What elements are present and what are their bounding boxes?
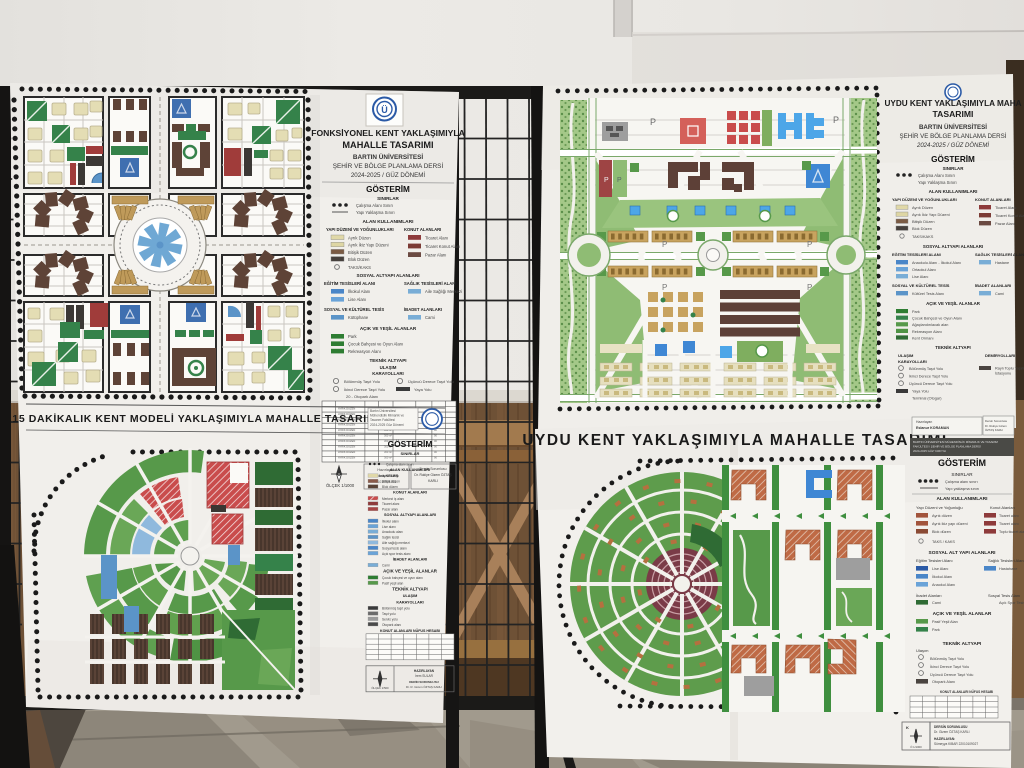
svg-text:Ayrık ikiz yapı düzeni: Ayrık ikiz yapı düzeni [932,522,968,526]
svg-text:P: P [833,115,839,125]
svg-text:SOSYAL ALT YAPI ALANLARI: SOSYAL ALT YAPI ALANLARI [929,550,997,556]
svg-text:Kent Ormanı: Kent Ormanı [912,336,934,340]
svg-text:Sosyal tesis alanı: Sosyal tesis alanı [382,546,407,550]
svg-text:300 m²: 300 m² [384,450,392,454]
svg-text:Çocuk Bahçesi ve Oyun Alanı: Çocuk Bahçesi ve Oyun Alanı [348,341,403,346]
svg-text:Ayrık Düzen: Ayrık Düzen [912,205,933,210]
svg-text:Lise alanı: Lise alanı [382,525,396,529]
svg-text:DEMİRYOLLARI: DEMİRYOLLARI [985,353,1015,358]
svg-text:TEKNİK ALTYAPI: TEKNİK ALTYAPI [369,357,406,363]
svg-text:İBADET ALANLARI: İBADET ALANLARI [975,283,1011,288]
svg-text:Ulaşım: Ulaşım [916,648,929,653]
svg-text:Sümeyya KIBAR 22010109027: Sümeyya KIBAR 22010109027 [934,742,978,746]
svg-text:Ticaret Alanı: Ticaret Alanı [425,236,448,241]
svg-text:TEKNİK ALTYAPI: TEKNİK ALTYAPI [392,586,427,591]
svg-text:Terminal (Otogar): Terminal (Otogar) [912,397,942,401]
svg-text:Tasarım Fakültesi: Tasarım Fakültesi [370,418,395,422]
svg-text:ŞEHİR VE BÖLGE PLANLAMA DERSİ: ŞEHİR VE BÖLGE PLANLAMA DERSİ [333,161,444,170]
svg-text:AYRIK DÜZEN: AYRIK DÜZEN [338,445,355,449]
svg-text:İlkokul Alanı: İlkokul Alanı [348,289,370,294]
svg-text:Ağaçlandırılacak alan: Ağaçlandırılacak alan [912,323,948,327]
svg-text:UYDU KENT YAKLAŞIMIYLA MAHA: UYDU KENT YAKLAŞIMIYLA MAHA [884,99,1021,108]
svg-text:DERİN SORUMLUSU: DERİN SORUMLUSU [409,679,439,684]
svg-text:KARLI: KARLI [428,479,438,483]
svg-text:GÖSTERİM: GÖSTERİM [931,154,975,164]
svg-text:İkinci Derece Taşıt Yolu: İkinci Derece Taşıt Yolu [909,374,948,379]
svg-text:Bartın Üniversitesi: Bartın Üniversitesi [370,409,396,413]
svg-text:Sağlık Tesisleri Alanı: Sağlık Tesisleri Alanı [988,558,1024,563]
svg-text:Toplu ticaret alanı: Toplu ticaret alanı [999,530,1024,534]
svg-text:Bitişik Düzen: Bitişik Düzen [912,219,935,224]
svg-text:Anaokulu alanı: Anaokulu alanı [382,530,403,534]
svg-text:Pazar Alanı: Pazar Alanı [995,221,1015,226]
svg-text:P: P [650,117,656,127]
svg-text:Çocuk Bahçesi ve Oyun Alanı: Çocuk Bahçesi ve Oyun Alanı [912,317,962,321]
svg-text:AYRIK DÜZEN: AYRIK DÜZEN [338,439,355,443]
svg-text:P: P [662,240,667,249]
svg-text:AÇIK VE YEŞİL ALANLAR: AÇIK VE YEŞİL ALANLAR [360,325,417,331]
svg-text:20 - Otopark Alanı: 20 - Otopark Alanı [346,394,378,399]
svg-text:300 m²: 300 m² [384,434,392,438]
svg-text:MAHALLE TASARIMI: MAHALLE TASARIMI [342,140,433,150]
svg-text:Bitişik düzen: Bitişik düzen [382,480,400,484]
svg-text:Dersin Sorumlusu: Dersin Sorumlusu [985,419,1008,423]
svg-text:Açık spor tesis alanı: Açık spor tesis alanı [382,552,411,556]
svg-text:AÇIK VE YEŞİL ALANLAR: AÇIK VE YEŞİL ALANLAR [933,610,992,617]
svg-text:Yaya Yolu: Yaya Yolu [414,387,432,392]
svg-text:BARTIN ÜNİVERSİTESİ MÜHENDİSLİ: BARTIN ÜNİVERSİTESİ MÜHENDİSLİK MİMARLIK… [913,439,998,444]
svg-text:2024-2025 Güz Dönemi: 2024-2025 Güz Dönemi [370,423,404,427]
svg-text:SOSYAL ALTYAPI ALANLARI: SOSYAL ALTYAPI ALANLARI [923,244,983,249]
svg-text:KARAYOLLARI: KARAYOLLARI [898,359,927,364]
svg-text:Cami: Cami [932,601,941,605]
svg-text:Otopark alanı: Otopark alanı [382,623,401,627]
svg-text:Raylı Toplu Taşıma: Raylı Toplu Taşıma [995,367,1024,371]
svg-text:FAKÜLTESİ / ŞEHİR VE BÖLGE PLA: FAKÜLTESİ / ŞEHİR VE BÖLGE PLANLAMA DERS… [913,444,981,449]
svg-text:Bölünmüş Taşıt Yolu: Bölünmüş Taşıt Yolu [909,367,943,371]
svg-text:Anaokulu Alanı - İlkokul Alanı: Anaokulu Alanı - İlkokul Alanı [912,260,961,265]
svg-text:Eslanur KORAMAN: Eslanur KORAMAN [916,426,949,430]
svg-text:YAPI DÜZENİ VE YOǦUNLUKLARI: YAPI DÜZENİ VE YOǦUNLUKLARI [326,227,394,232]
svg-text:Ayrık düzen: Ayrık düzen [382,474,399,478]
svg-text:300 m²: 300 m² [384,455,392,459]
svg-text:Yaya Yolu: Yaya Yolu [912,390,929,394]
svg-text:Sağlık tesisi: Sağlık tesisi [382,536,399,540]
svg-text:Ü: Ü [381,105,388,115]
svg-text:Hazırlayan: Hazırlayan [916,420,932,424]
svg-text:Dr. R. Gizem ÖZTAŞ KARLI: Dr. R. Gizem ÖZTAŞ KARLI [406,685,442,689]
svg-text:KONUT ALANLARI NÜFUS HESABI: KONUT ALANLARI NÜFUS HESABI [940,689,993,694]
svg-text:AYRIK DÜZEN: AYRIK DÜZEN [338,455,355,459]
svg-text:TEKNİK ALTYAPI: TEKNİK ALTYAPI [935,345,970,350]
svg-text:HAZIRLAYAN: HAZIRLAYAN [414,669,435,673]
svg-text:Merkezi iş alanı: Merkezi iş alanı [382,497,404,501]
svg-text:15 DAKİKALIK KENT MODELİ YAKLA: 15 DAKİKALIK KENT MODELİ YAKLAŞIMIYLA MA… [12,412,379,425]
svg-text:Mühendislik Mimarlık ve: Mühendislik Mimarlık ve [370,414,404,418]
svg-text:SINIRLAR: SINIRLAR [401,451,420,456]
svg-text:Ticaret Konut Alanı: Ticaret Konut Alanı [995,213,1024,218]
svg-text:Eğitim Tesisleri Alanı: Eğitim Tesisleri Alanı [916,558,953,563]
svg-text:Taşıt yolu: Taşıt yolu [382,612,396,616]
svg-text:Ticaret Alanı: Ticaret Alanı [995,205,1016,210]
svg-text:P: P [807,283,812,292]
svg-text:Pazar alanı: Pazar alanı [382,508,398,512]
svg-text:Pazar Alanı: Pazar Alanı [425,253,446,258]
svg-text:Aile sağlığı merkezi: Aile sağlığı merkezi [382,541,410,545]
svg-text:Blok düzen: Blok düzen [382,485,398,489]
svg-text:Cami: Cami [995,292,1004,296]
svg-text:ALAN KULLANIMLARI: ALAN KULLANIMLARI [929,189,978,194]
svg-text:Bölünmüş taşıt yolu: Bölünmüş taşıt yolu [382,607,410,611]
svg-text:P: P [604,177,609,184]
svg-text:SINIRLAR: SINIRLAR [951,472,973,477]
svg-text:2024-2025 / GÜZ DÖNEMİ: 2024-2025 / GÜZ DÖNEMİ [916,142,989,149]
svg-text:Pasif yeşil alan: Pasif yeşil alan [382,581,403,585]
svg-text:Dr. Rukiye Gizem ÖZTAŞ: Dr. Rukiye Gizem ÖZTAŞ [414,473,452,477]
svg-text:Lise Alanı: Lise Alanı [912,275,928,279]
svg-text:TAKS/KAKS: TAKS/KAKS [912,234,934,239]
svg-text:SOSYAL ALTYAPI ALANLARI: SOSYAL ALTYAPI ALANLARI [384,513,436,517]
svg-text:Yapı Yaklaşma Sınırı: Yapı Yaklaşma Sınırı [356,210,395,215]
svg-text:Otopark Alanı: Otopark Alanı [932,680,955,684]
svg-text:ULAŞIM: ULAŞIM [403,594,418,598]
svg-text:Aile Sağlığı Merkezi: Aile Sağlığı Merkezi [425,289,462,294]
svg-text:TAKS/KAKS: TAKS/KAKS [348,265,371,270]
svg-text:Açık Spor Tesisi: Açık Spor Tesisi [999,601,1024,605]
svg-text:Kültürel Tesis Alanı: Kültürel Tesis Alanı [912,292,944,296]
svg-text:EǦİTİM TESİSLERİ ALANI: EǦİTİM TESİSLERİ ALANI [324,281,375,286]
svg-text:Ö 1/1000: Ö 1/1000 [910,745,922,749]
svg-text:İBADET ALANLARI: İBADET ALANLARI [393,557,427,561]
svg-text:SAǦLIK TESİSLERİ ALANI: SAǦLIK TESİSLERİ ALANI [404,281,456,286]
svg-text:İstasyonu: İstasyonu [995,371,1011,376]
svg-text:Ayrık düzen: Ayrık düzen [932,514,952,518]
svg-text:Rekreasyon Alanı: Rekreasyon Alanı [912,330,942,334]
svg-text:KONUT ALANLARI NÜFUS HESABI: KONUT ALANLARI NÜFUS HESABI [380,628,440,633]
svg-text:Bitişik Düzen: Bitişik Düzen [348,250,373,255]
svg-text:Çalışma Alanı Sınırı: Çalışma Alanı Sınırı [356,203,393,208]
svg-text:AÇIK VE YEŞİL ALANLAR: AÇIK VE YEŞİL ALANLAR [926,301,981,306]
svg-text:BARTIN ÜNİVERSİTESİ: BARTIN ÜNİVERSİTESİ [353,152,424,161]
svg-text:Konut Alanları: Konut Alanları [990,505,1015,510]
svg-text:Park: Park [348,334,358,339]
svg-text:Ticaret Konut Alanı: Ticaret Konut Alanı [425,244,460,249]
svg-text:Anaokul Alanı: Anaokul Alanı [932,583,955,587]
svg-text:Ticaret alanı: Ticaret alanı [999,522,1019,526]
svg-text:ULAŞIM: ULAŞIM [898,353,914,358]
svg-text:P: P [662,283,667,292]
svg-text:SOSYAL ALTYAPI ALANLARI: SOSYAL ALTYAPI ALANLARI [357,273,420,278]
svg-text:P: P [617,177,622,184]
svg-text:SINIRLAR: SINIRLAR [943,166,965,171]
svg-text:KARAYOLLARI: KARAYOLLARI [372,371,404,376]
svg-text:ÖLÇEK 1/500: ÖLÇEK 1/500 [371,686,389,690]
svg-text:AÇIK VE YEŞİL ALANLAR: AÇIK VE YEŞİL ALANLAR [383,569,438,574]
svg-text:ALAN KULLANIMLARI: ALAN KULLANIMLARI [363,219,415,225]
svg-text:EǦİTİM TESİSLERİ ALANI: EǦİTİM TESİSLERİ ALANI [892,252,941,257]
svg-text:Hastahane: Hastahane [999,567,1017,571]
svg-text:2024-2025 GÜZ YARIYILI: 2024-2025 GÜZ YARIYILI [913,449,946,453]
svg-text:2024-2025 / GÜZ DÖNEMİ: 2024-2025 / GÜZ DÖNEMİ [351,172,426,179]
svg-text:Blok Düzen: Blok Düzen [348,257,370,262]
svg-text:Üçüncü Derece Taşıt Yolu: Üçüncü Derece Taşıt Yolu [930,673,973,677]
svg-text:İlkokul Alanı: İlkokul Alanı [932,574,952,579]
svg-text:AYRIK DÜZEN: AYRIK DÜZEN [338,428,355,432]
svg-text:İrem SULAR: İrem SULAR [415,673,434,678]
svg-text:FONKSİYONEL KENT YAKLAŞIMIYLA: FONKSİYONEL KENT YAKLAŞIMIYLA [311,128,465,138]
svg-text:Sosyal Tesis Alanı: Sosyal Tesis Alanı [988,593,1020,598]
svg-text:İkinci Derece Taşıt Yolu: İkinci Derece Taşıt Yolu [344,387,385,392]
svg-text:Cami: Cami [425,315,435,320]
svg-text:SOSYAL VE KÜLTÜREL TESİS: SOSYAL VE KÜLTÜREL TESİS [892,283,950,288]
svg-text:Cami: Cami [382,564,390,568]
svg-text:Lise Alanı: Lise Alanı [348,297,366,302]
svg-text:Hastane: Hastane [995,261,1009,265]
svg-text:Pasif Yeşil Alan: Pasif Yeşil Alan [932,620,958,624]
svg-text:TEKNİK ALTYAPI: TEKNİK ALTYAPI [943,640,982,647]
svg-text:ALAN KULLANIMLARI: ALAN KULLANIMLARI [390,468,430,472]
svg-text:Bölünmüş Taşıt Yolu: Bölünmüş Taşıt Yolu [930,657,964,661]
svg-text:TASARIMI: TASARIMI [933,109,974,119]
svg-text:ÖZTAŞ KARLI: ÖZTAŞ KARLI [985,428,1003,432]
svg-text:GÖSTERİM: GÖSTERİM [388,439,433,449]
svg-text:Üçüncü Derece Taşıt Yolu: Üçüncü Derece Taşıt Yolu [909,382,952,386]
svg-text:TAKS / KAKS: TAKS / KAKS [932,540,955,544]
svg-text:Çalışma alanı sınırı: Çalışma alanı sınırı [945,480,978,484]
svg-text:KONUT ALANLARI: KONUT ALANLARI [404,227,441,232]
svg-text:KONUT ALANLARI: KONUT ALANLARI [393,491,427,495]
svg-text:Ortaokul Alanı: Ortaokul Alanı [912,268,936,272]
svg-text:Blok düzen: Blok düzen [932,530,951,534]
svg-text:ALAN KULLANIMLARI: ALAN KULLANIMLARI [937,496,989,502]
svg-text:İkinci Derece Taşıt Yolu: İkinci Derece Taşıt Yolu [930,664,969,669]
svg-text:UYDU KENT YAKLAŞIMIYLA MAHA: UYDU KENT YAKLAŞIMIYLA MAHALLE TASARIMI [522,432,947,449]
svg-text:Yapı Düzeni ve Yoğunluğu: Yapı Düzeni ve Yoğunluğu [916,505,963,510]
svg-text:GÖSTERİM: GÖSTERİM [366,184,410,194]
svg-text:SINIRLAR: SINIRLAR [377,196,399,201]
svg-text:K: K [906,725,909,730]
svg-text:Yapı yaklaşma sınırı: Yapı yaklaşma sınırı [945,487,979,491]
svg-text:P: P [807,240,812,249]
svg-text:Çalışma Alanı Sınırı: Çalışma Alanı Sınırı [918,173,955,178]
svg-text:GÖSTERİM: GÖSTERİM [938,458,986,468]
svg-text:AYRIK DÜZEN: AYRIK DÜZEN [338,450,355,454]
svg-text:Bölünmüş Taşıt Yolu: Bölünmüş Taşıt Yolu [344,379,380,384]
svg-text:Servis yolu: Servis yolu [382,617,398,621]
svg-text:İlkokul alanı: İlkokul alanı [382,518,399,523]
svg-text:Kütüphane: Kütüphane [348,315,369,320]
svg-text:HAZIRLAYAN:: HAZIRLAYAN: [934,737,955,741]
svg-text:İBADET ALANLARI: İBADET ALANLARI [404,307,442,312]
svg-text:ULAŞIM: ULAŞIM [380,365,397,370]
svg-text:ÖLÇEK 1/1000: ÖLÇEK 1/1000 [326,483,355,488]
svg-text:Lise Alanı: Lise Alanı [932,567,948,571]
svg-text:DERSİN SORUMLUSU: DERSİN SORUMLUSU [934,725,968,729]
svg-text:İbadet Alanları: İbadet Alanları [916,593,942,598]
svg-text:Ayrık Düzen: Ayrık Düzen [348,236,371,241]
svg-text:Üçüncü Derece Taşıt Yolu: Üçüncü Derece Taşıt Yolu [408,379,454,384]
svg-text:Rekreasyon Alanı: Rekreasyon Alanı [348,349,381,354]
svg-text:ŞEHİR VE BÖLGE PLANLAMA DERSİ: ŞEHİR VE BÖLGE PLANLAMA DERSİ [900,133,1007,140]
svg-text:SOSYAL VE KÜLTÜREL TESİS: SOSYAL VE KÜLTÜREL TESİS [324,307,384,312]
svg-text:Ayrık İkiz Yapı Düzeni: Ayrık İkiz Yapı Düzeni [912,212,950,217]
svg-text:Park: Park [932,628,940,632]
svg-text:BARTIN ÜNİVERSİTESİ: BARTIN ÜNİVERSİTESİ [919,124,987,131]
svg-text:Yapı Yaklaşma Sınırı: Yapı Yaklaşma Sınırı [918,180,957,185]
svg-text:Dr. Gizem ÖZTAŞ KARLI: Dr. Gizem ÖZTAŞ KARLI [934,730,970,734]
svg-text:YAPI DÜZENİ VE YOǦUNLUKLARI: YAPI DÜZENİ VE YOǦUNLUKLARI [892,197,957,202]
svg-text:Çalışma alanı sınırı: Çalışma alanı sınırı [386,463,414,467]
svg-text:Çocuk bahçesi ve oyun alanı: Çocuk bahçesi ve oyun alanı [382,576,423,580]
svg-text:Ticaret alanı: Ticaret alanı [999,514,1019,518]
svg-text:Blok Düzen: Blok Düzen [912,226,932,231]
svg-text:KARAYOLLARI: KARAYOLLARI [396,600,423,604]
svg-text:Ticaret alanı: Ticaret alanı [382,502,400,506]
svg-text:AYRIK DÜZEN: AYRIK DÜZEN [338,434,355,438]
svg-text:Ayrık İkiz Yapı Düzeni: Ayrık İkiz Yapı Düzeni [348,243,389,248]
svg-text:Park: Park [912,310,920,314]
svg-text:KONUT ALANLARI: KONUT ALANLARI [975,197,1011,202]
svg-text:SAǦLIK TESİSLERİ ALANI: SAǦLIK TESİSLERİ ALANI [975,252,1024,257]
